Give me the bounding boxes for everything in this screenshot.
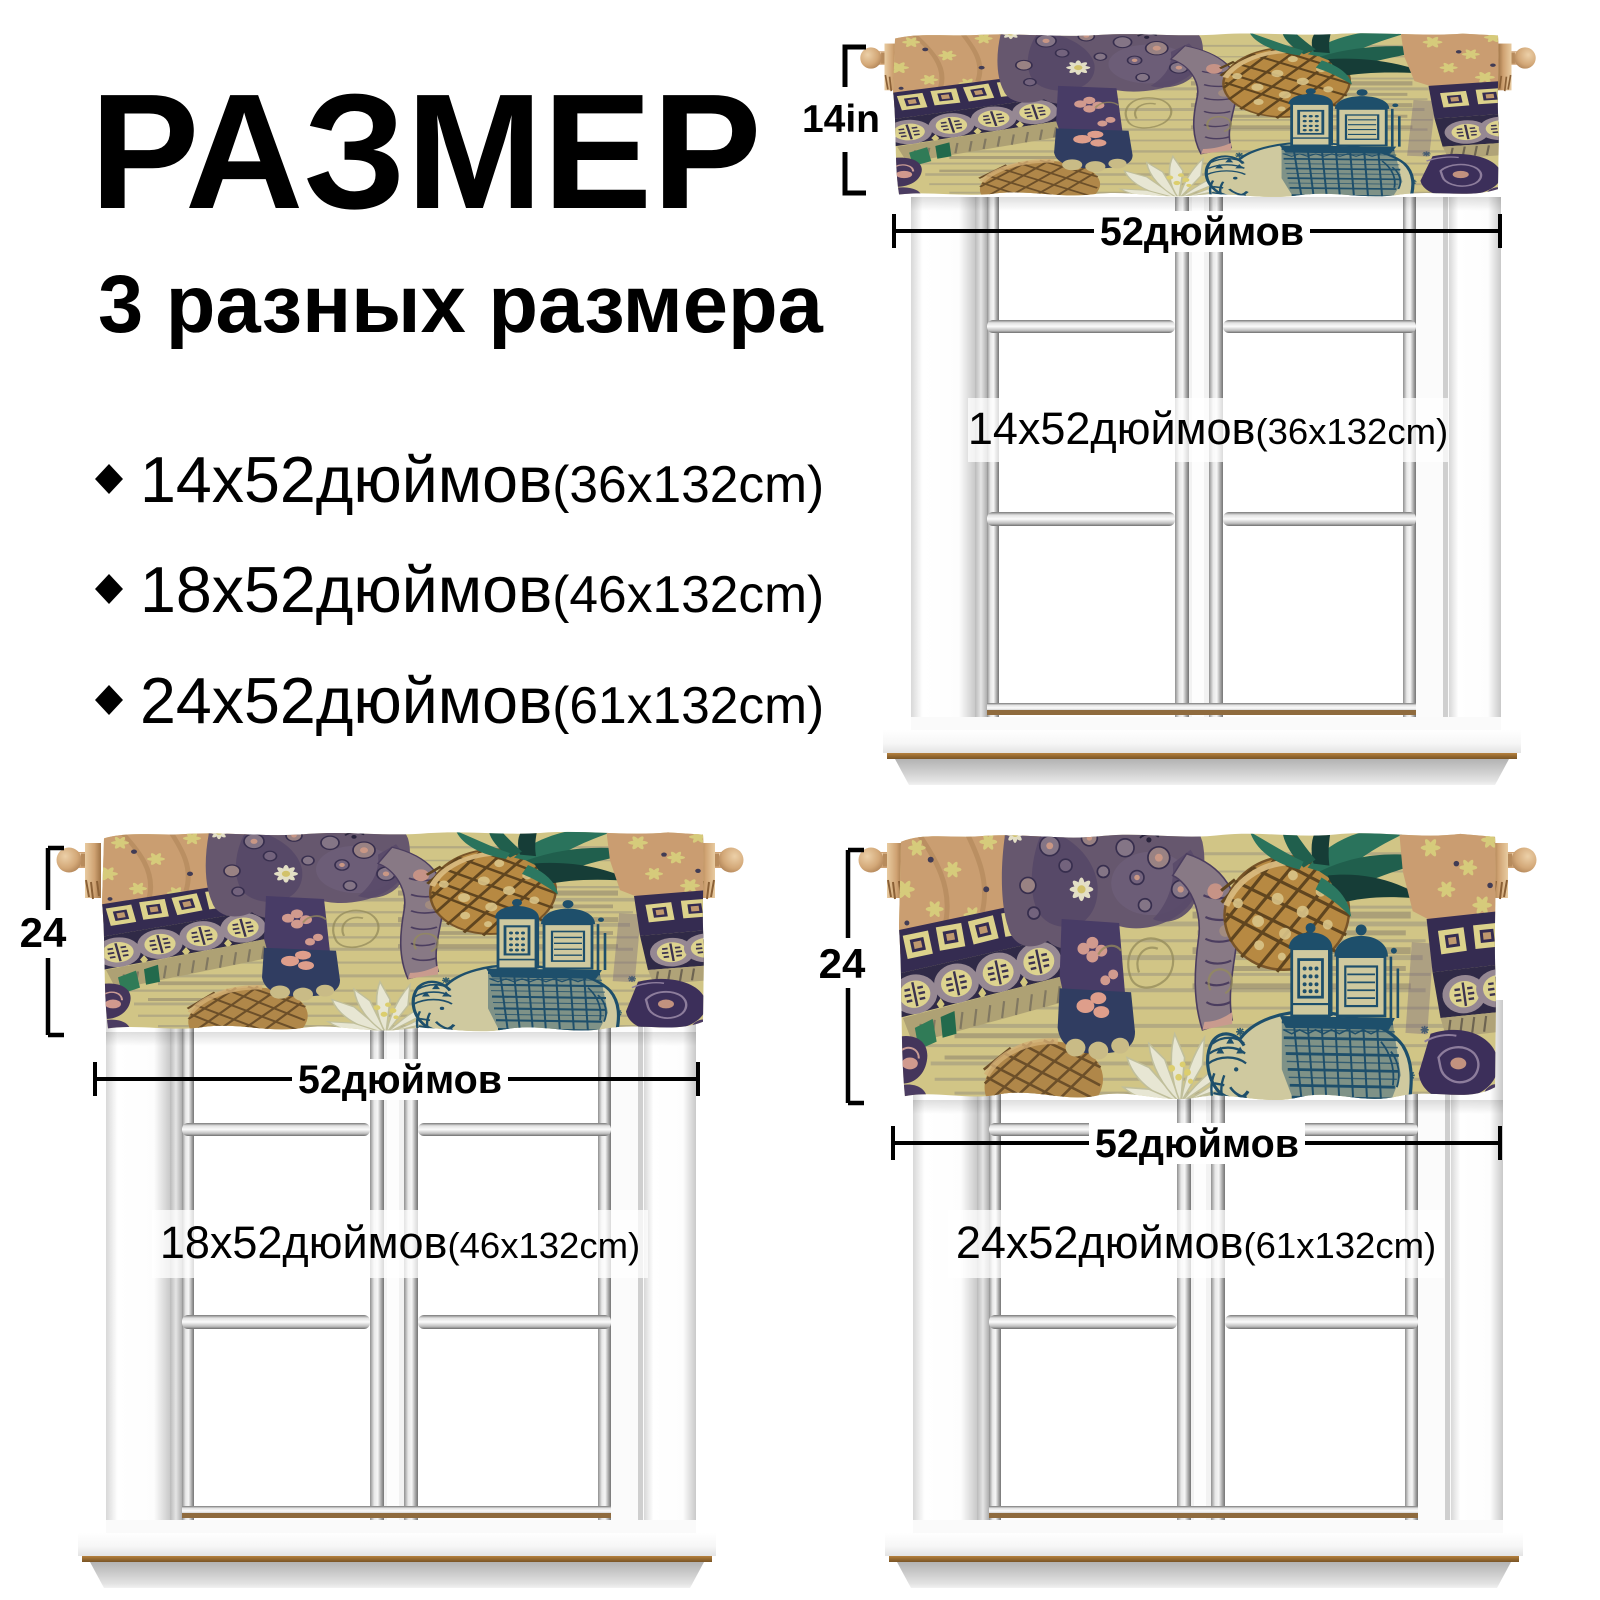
svg-text:52дюймов: 52дюймов (1100, 210, 1304, 254)
svg-text:14in: 14in (802, 98, 880, 141)
svg-text:52дюймов: 52дюймов (1095, 1122, 1299, 1166)
svg-text:РАЗМЕР: РАЗМЕР (90, 60, 762, 243)
svg-text:24x52дюймов(61x132cm): 24x52дюймов(61x132cm) (956, 1217, 1436, 1268)
svg-text:3 разных размера: 3 разных размера (98, 259, 824, 350)
svg-text:14x52дюймов(36x132cm): 14x52дюймов(36x132cm) (140, 444, 824, 516)
svg-text:18x52дюймов(46x132cm): 18x52дюймов(46x132cm) (160, 1217, 640, 1268)
svg-text:14x52дюймов(36x132cm): 14x52дюймов(36x132cm) (968, 403, 1448, 454)
svg-text:24: 24 (20, 909, 67, 956)
svg-text:18x52дюймов(46x132cm): 18x52дюймов(46x132cm) (140, 554, 824, 626)
svg-text:24x52дюймов(61x132cm): 24x52дюймов(61x132cm) (140, 665, 824, 737)
svg-text:52дюймов: 52дюймов (298, 1058, 502, 1102)
svg-text:24: 24 (819, 940, 866, 987)
